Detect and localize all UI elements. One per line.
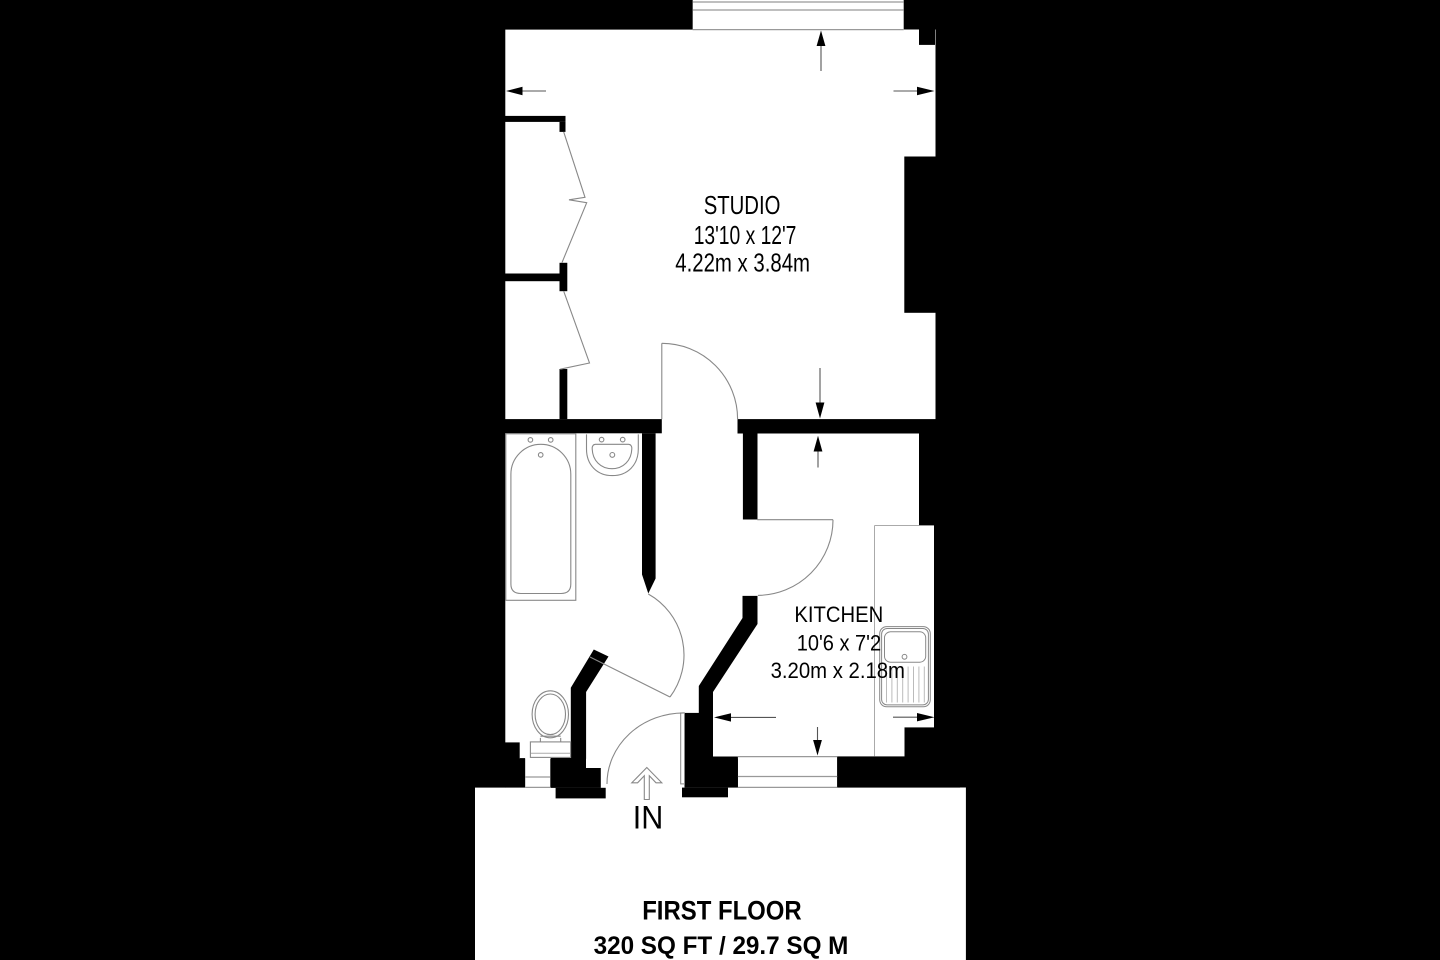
svg-text:3.20m x 2.18m: 3.20m x 2.18m bbox=[771, 658, 905, 683]
svg-text:IN: IN bbox=[633, 799, 664, 836]
svg-text:320 SQ FT / 29.7 SQ M: 320 SQ FT / 29.7 SQ M bbox=[594, 932, 849, 960]
svg-text:13'10 x 12'7: 13'10 x 12'7 bbox=[694, 222, 797, 250]
svg-text:STUDIO: STUDIO bbox=[704, 192, 781, 220]
svg-text:KITCHEN: KITCHEN bbox=[794, 602, 883, 627]
svg-text:FIRST FLOOR: FIRST FLOOR bbox=[642, 896, 802, 926]
svg-text:4.22m x 3.84m: 4.22m x 3.84m bbox=[675, 250, 810, 278]
svg-text:10'6 x 7'2: 10'6 x 7'2 bbox=[797, 630, 881, 655]
